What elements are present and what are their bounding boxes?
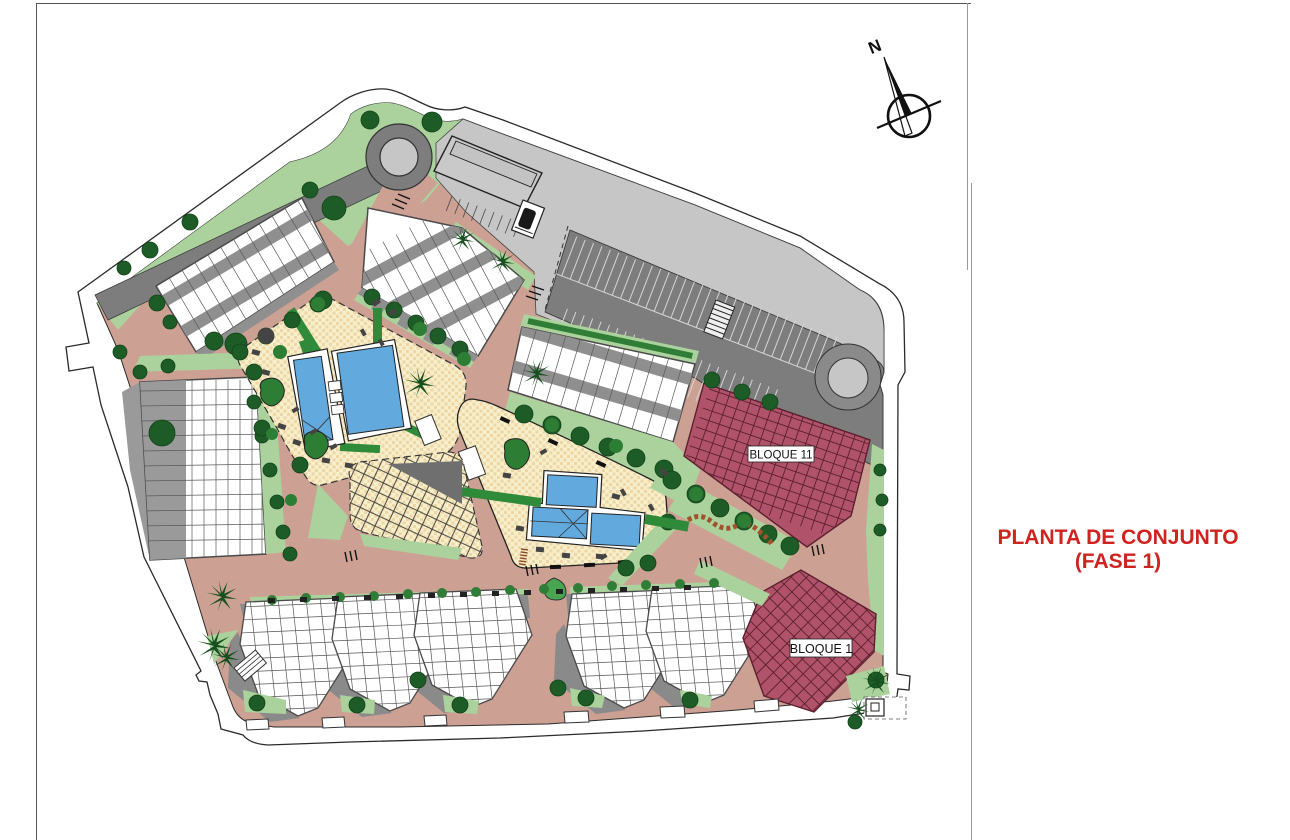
svg-text:BLOQUE 11: BLOQUE 11 (749, 450, 812, 462)
svg-text:PLANTA DE CONJUNTO: PLANTA DE CONJUNTO (997, 526, 1238, 549)
svg-text:BLOQUE 1: BLOQUE 1 (790, 642, 853, 656)
svg-text:(FASE 1): (FASE 1) (1075, 550, 1161, 573)
